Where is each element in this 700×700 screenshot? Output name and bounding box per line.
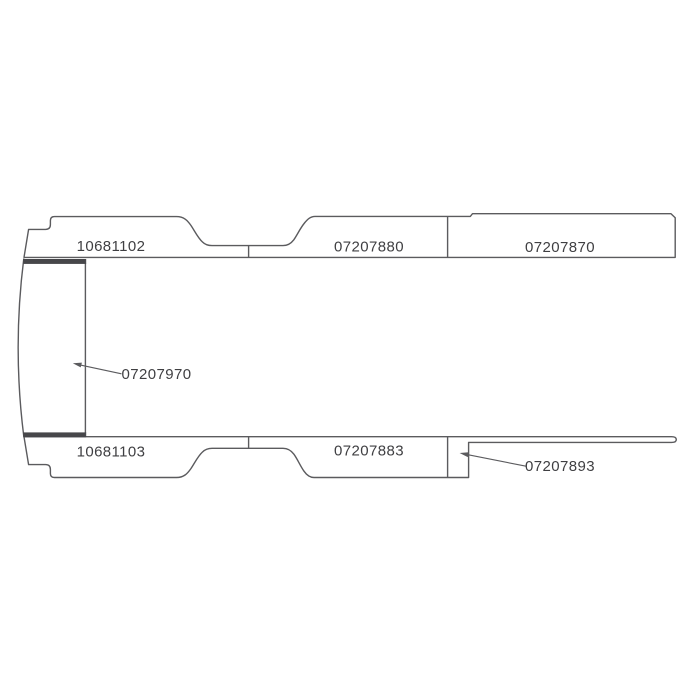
front-panel-left-curved-edge xyxy=(18,259,24,437)
arrowhead-sill xyxy=(460,452,469,457)
leader-line-sill xyxy=(464,454,526,466)
part-label-top-strip-middle: 07207880 xyxy=(334,239,404,256)
part-label-bottom-strip-left: 10681103 xyxy=(77,444,146,461)
leader-line-front-panel xyxy=(77,364,122,374)
arrowhead-front-panel xyxy=(73,363,82,368)
parts-diagram: 10681102 07207880 07207870 07207970 1068… xyxy=(0,0,700,700)
front-panel-bottom-bar xyxy=(24,433,86,437)
part-label-bottom-strip-middle: 07207883 xyxy=(334,443,404,460)
part-label-top-strip-right: 07207870 xyxy=(525,239,595,256)
part-label-top-strip-left: 10681102 xyxy=(77,238,146,255)
part-label-front-panel: 07207970 xyxy=(122,366,192,383)
front-panel-top-bar xyxy=(24,259,86,263)
diagram-drawing: 10681102 07207880 07207870 07207970 1068… xyxy=(0,0,700,700)
part-label-bottom-sill: 07207893 xyxy=(525,458,595,475)
